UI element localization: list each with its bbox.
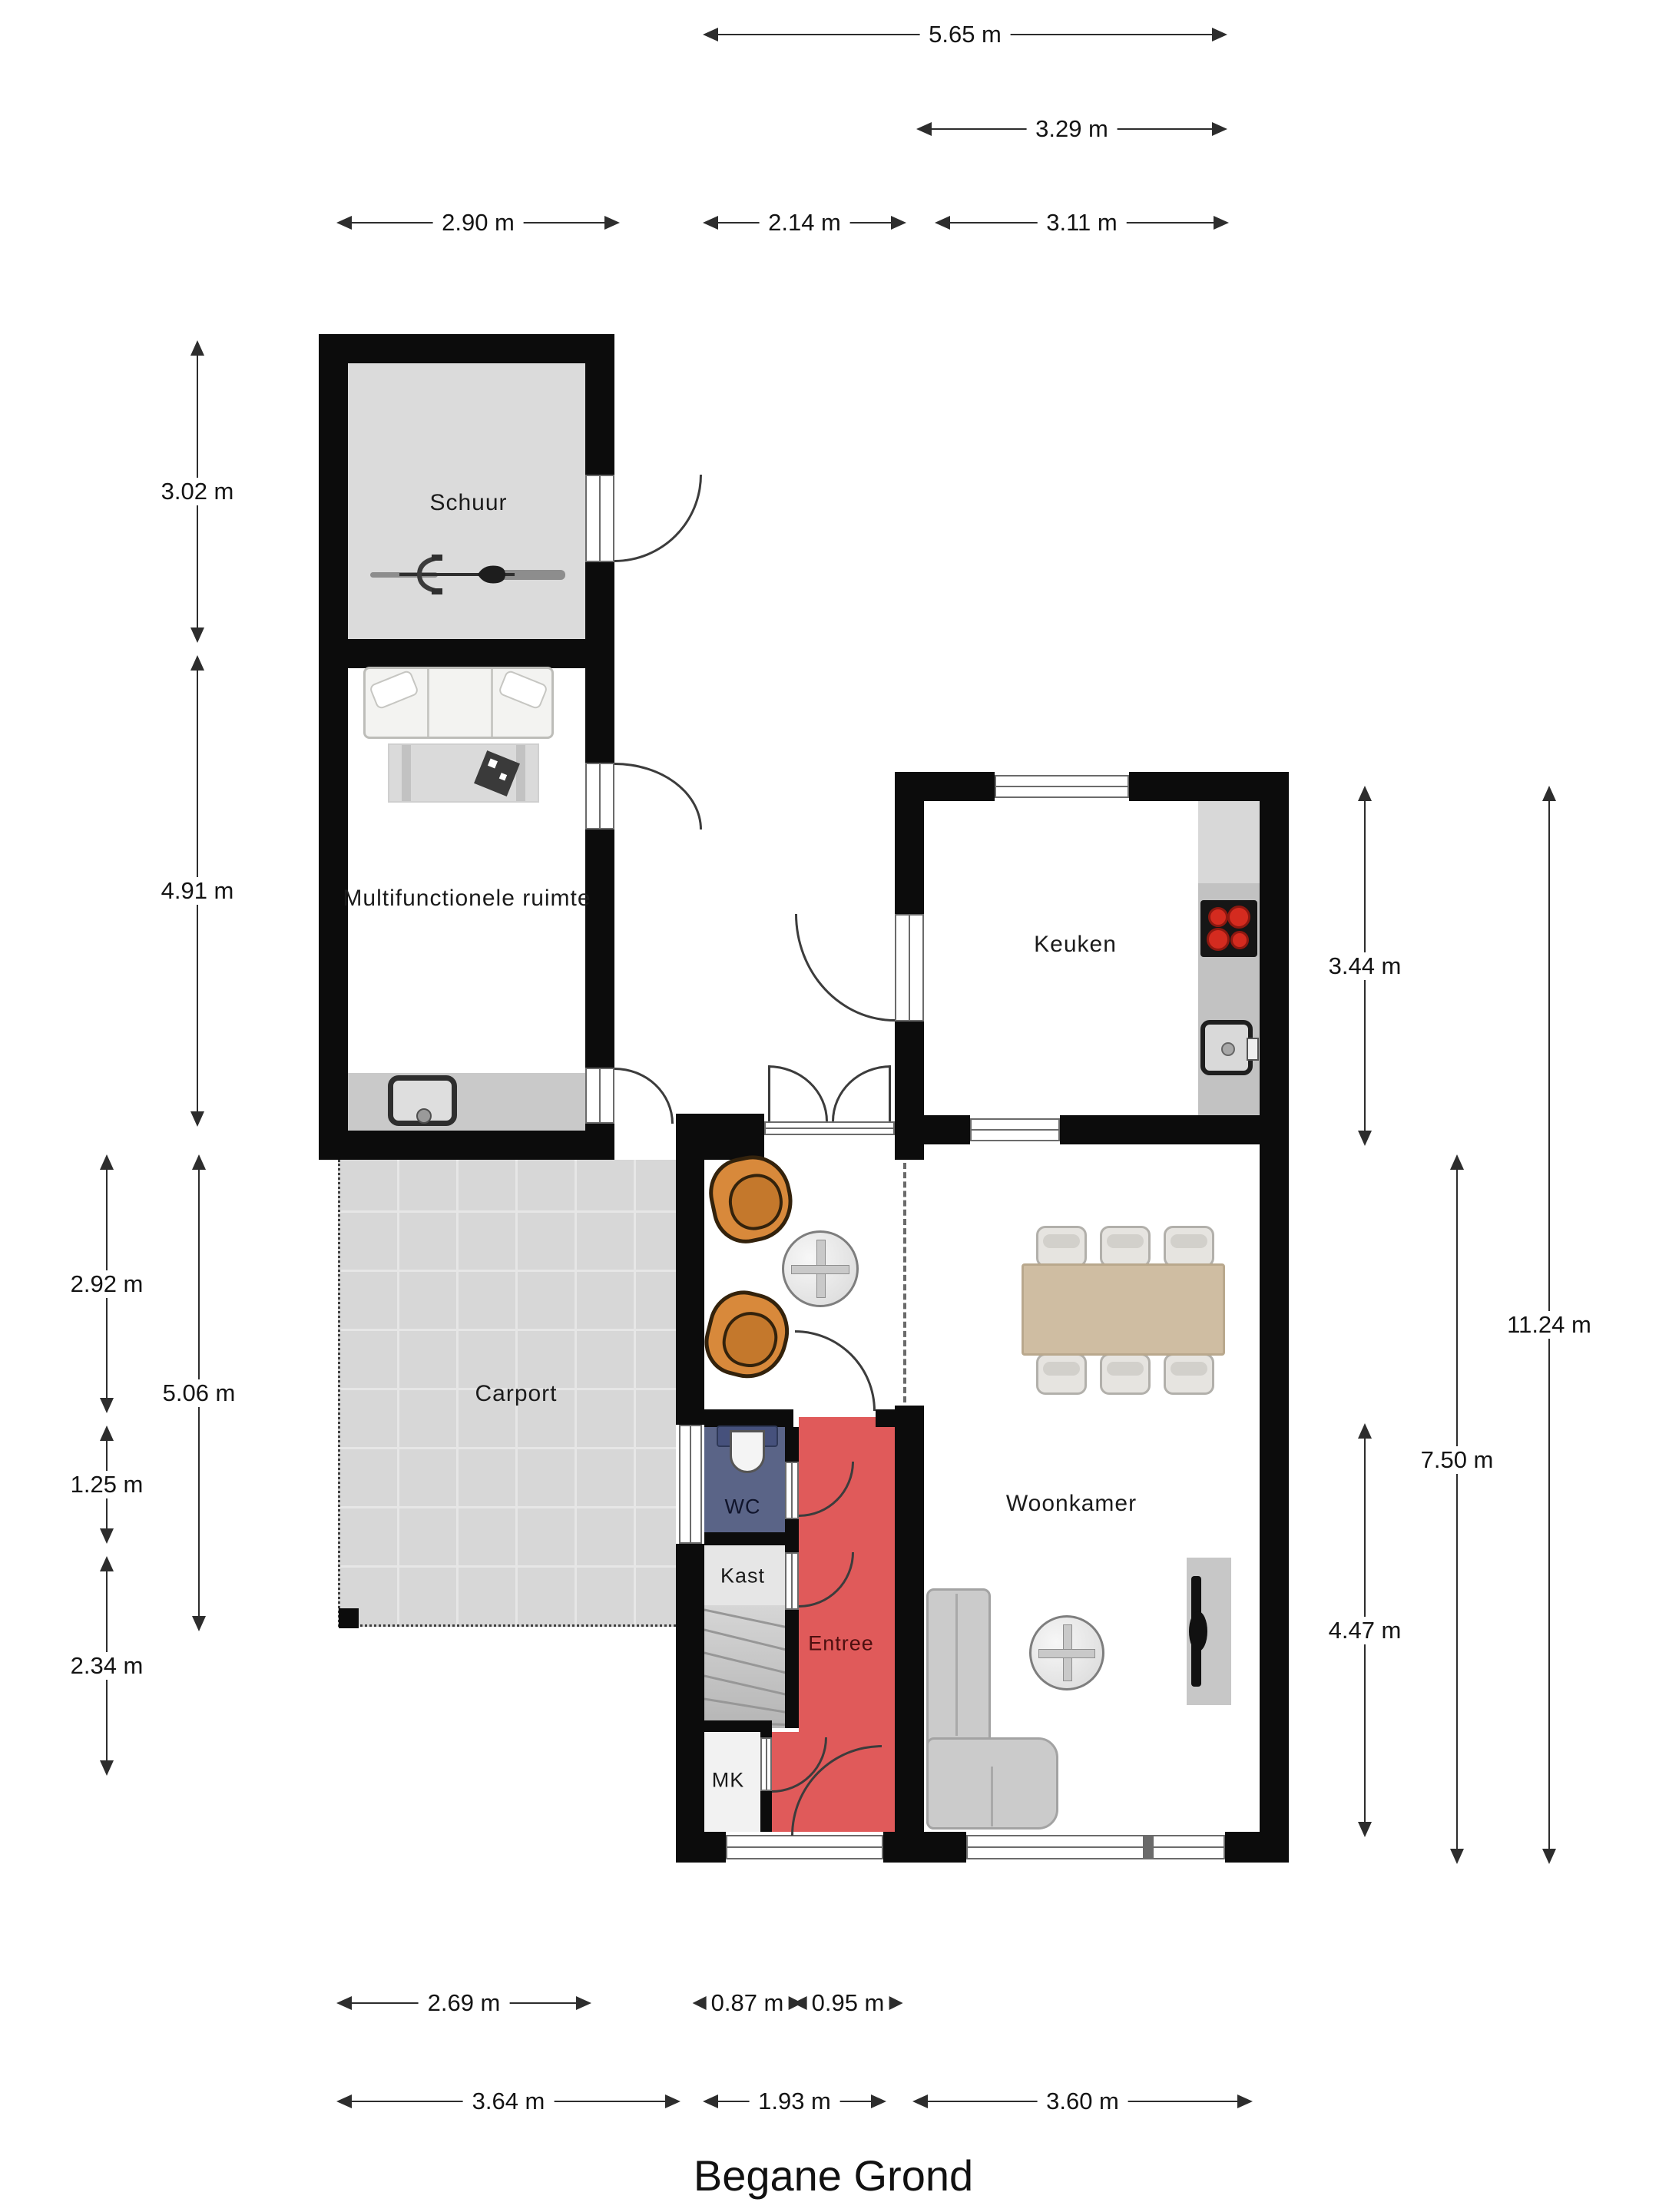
wall-segment xyxy=(1225,1832,1289,1863)
door-swing-arc xyxy=(832,1065,891,1121)
front-door-window xyxy=(726,1835,883,1859)
room-label-keuken: Keuken xyxy=(1034,932,1117,958)
dining-chair xyxy=(1036,1353,1087,1395)
floor-title: Begane Grond xyxy=(694,2151,973,2200)
door-frame xyxy=(895,914,924,1022)
window xyxy=(679,1425,702,1544)
door-leaf xyxy=(889,1065,891,1121)
wall-segment xyxy=(785,1427,799,1462)
window-sill xyxy=(764,1121,895,1135)
wall-segment xyxy=(785,1610,799,1728)
wall-segment xyxy=(924,1115,970,1144)
sofa-pillow xyxy=(369,669,420,710)
wall-segment xyxy=(676,1544,704,1832)
door-swing-arc xyxy=(768,1065,828,1121)
dining-table xyxy=(1022,1263,1225,1356)
wall-segment xyxy=(676,1114,764,1160)
burner xyxy=(1208,907,1228,927)
table-edge xyxy=(516,745,525,801)
wall-segment xyxy=(704,1720,772,1732)
kitchen-sink xyxy=(1200,1020,1253,1075)
room-label-kast: Kast xyxy=(720,1565,765,1588)
bicycle-icon xyxy=(369,551,568,598)
burner xyxy=(1227,906,1250,929)
wall-segment xyxy=(704,1409,793,1427)
wall-segment xyxy=(876,1409,895,1427)
dimension-bottom-095: 0.95 m xyxy=(793,1989,903,2017)
room-label-mk: MK xyxy=(712,1769,745,1793)
wall-segment xyxy=(760,1732,772,1737)
bicycle xyxy=(369,551,568,598)
round-side-table xyxy=(1029,1615,1104,1690)
door-frame xyxy=(585,763,614,829)
window xyxy=(970,1118,1060,1141)
window xyxy=(966,1835,1225,1859)
sofa-pillow xyxy=(498,669,549,710)
dining-chair xyxy=(1100,1226,1151,1267)
toilet-bowl xyxy=(730,1430,765,1473)
room-label-carport: Carport xyxy=(475,1381,557,1407)
board-game-dot xyxy=(488,758,498,768)
wall-segment xyxy=(1060,1115,1260,1144)
sofa xyxy=(363,667,554,739)
door-frame xyxy=(760,1737,772,1791)
door-swing-arc xyxy=(614,763,702,829)
wall-segment xyxy=(585,562,614,763)
wall-segment xyxy=(585,829,614,1068)
wall-segment xyxy=(785,1519,799,1552)
corner-sofa-cushion-line xyxy=(991,1767,993,1826)
floorplan: Schuur Multifunctionele ruimte Keuken Ca… xyxy=(0,0,1659,2212)
wall-segment xyxy=(585,334,614,475)
keuken-counter-upper xyxy=(1198,801,1260,883)
room-label-schuur: Schuur xyxy=(429,490,507,516)
room-label-entree: Entree xyxy=(808,1632,874,1656)
dimension-bottom-087: 0.87 m xyxy=(693,1989,803,2017)
door-swing-arc xyxy=(614,1068,674,1124)
faucet xyxy=(416,1108,432,1124)
sofa-cushion-divider xyxy=(491,669,493,737)
dining-chair xyxy=(1100,1353,1151,1395)
wall-segment xyxy=(319,363,348,1160)
wall-segment xyxy=(704,1532,795,1545)
wall-segment xyxy=(895,772,995,801)
carport-post xyxy=(339,1608,359,1628)
door-frame xyxy=(585,475,614,562)
corner-sofa-cushion-line xyxy=(955,1594,958,1736)
wall-segment xyxy=(319,334,614,363)
dining-chair xyxy=(1164,1353,1214,1395)
window-mullion xyxy=(1143,1835,1154,1859)
faucet xyxy=(1247,1038,1259,1061)
board-game-dot xyxy=(499,773,507,780)
burner xyxy=(1207,928,1230,951)
door-leaf xyxy=(768,1065,770,1121)
burner xyxy=(1230,931,1249,949)
drain xyxy=(1221,1042,1235,1056)
dining-chair xyxy=(1036,1226,1087,1267)
board-game xyxy=(474,750,520,796)
wall-segment xyxy=(348,1131,585,1160)
wall-segment xyxy=(895,1406,924,1832)
wall-segment xyxy=(585,1124,614,1160)
door-frame xyxy=(585,1068,614,1124)
tv-center xyxy=(1189,1611,1207,1651)
door-swing-arc xyxy=(614,475,702,562)
door-swing-arc xyxy=(795,914,895,1022)
multifunctionele-ruimte-counter xyxy=(348,1073,585,1131)
sofa-cushion-divider xyxy=(427,669,429,737)
wall-segment xyxy=(676,1832,726,1863)
wall-segment xyxy=(676,1160,704,1425)
open-passage-dashed xyxy=(903,1163,906,1402)
wall-segment xyxy=(883,1832,966,1863)
room-label-woonkamer: Woonkamer xyxy=(1006,1491,1137,1517)
dining-chair xyxy=(1164,1226,1214,1267)
wall-segment xyxy=(1260,772,1289,1863)
wall-segment xyxy=(760,1791,772,1832)
door-frame xyxy=(785,1552,799,1610)
room-label-wc: WC xyxy=(725,1495,761,1519)
table-edge xyxy=(402,745,411,801)
door-frame xyxy=(785,1462,799,1519)
utility-sink xyxy=(388,1075,457,1126)
room-label-multifunctionele-ruimte: Multifunctionele ruimte xyxy=(343,886,591,912)
wall-segment xyxy=(348,639,585,668)
window xyxy=(995,775,1129,798)
round-table xyxy=(782,1230,859,1307)
table xyxy=(388,743,539,803)
cooktop xyxy=(1200,900,1257,957)
